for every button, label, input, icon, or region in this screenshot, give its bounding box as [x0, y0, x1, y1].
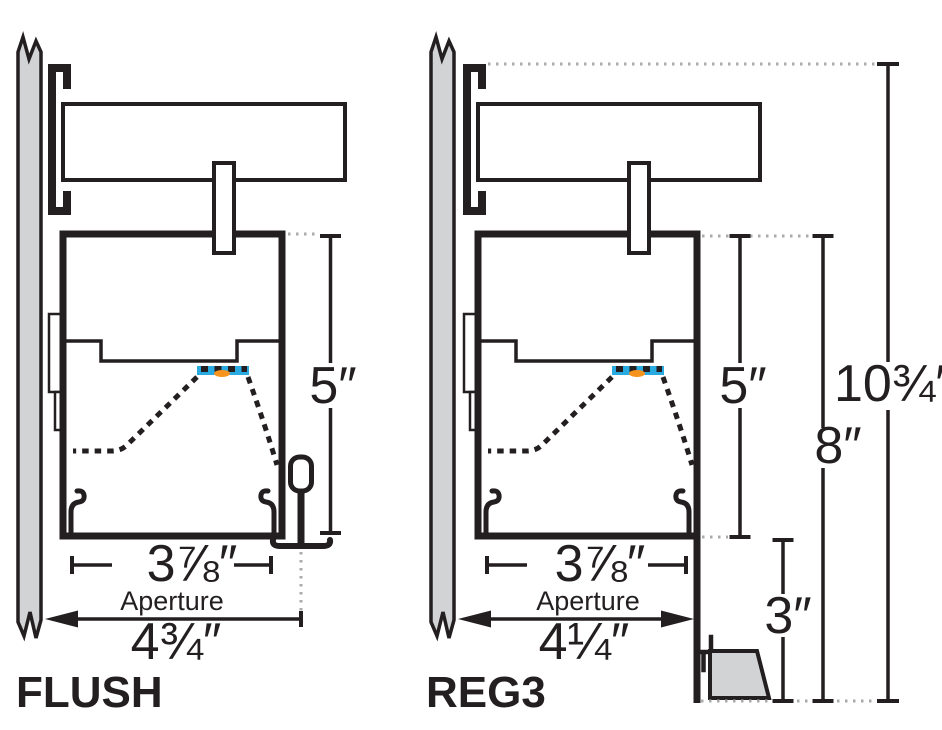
flush-aperture-value: 3⅞″ — [112, 540, 272, 588]
arrow-left-icon — [45, 611, 78, 628]
led-source — [629, 370, 645, 377]
fixture-housing — [63, 234, 282, 536]
wall-section — [431, 37, 454, 638]
reg3-figure-name: REG3 — [426, 670, 646, 716]
tbar-bulb — [291, 457, 312, 491]
mounting-blocking — [63, 104, 345, 180]
reg3-regress-label: 3″ — [758, 592, 818, 640]
diagram-canvas: 5″ 3⅞″ Aperture 4¾″ FLUSH 5″ 8″ 10¾″ 3″ … — [0, 0, 942, 730]
fixture-housing — [478, 234, 697, 536]
led-source — [214, 370, 230, 377]
arrow-left-icon — [458, 611, 491, 628]
reg3-height-label: 5″ — [713, 362, 773, 410]
reg3-aperture-label: Aperture — [508, 586, 668, 616]
reg3-flange-label: 8″ — [808, 422, 868, 470]
hanger-strap — [629, 163, 649, 253]
plaster-bead — [710, 651, 769, 698]
flush-aperture-label: Aperture — [92, 586, 252, 616]
flush-depth-label: 4¾″ — [96, 618, 256, 666]
flush-figure-name: FLUSH — [16, 670, 236, 716]
hanger-strap — [214, 163, 234, 253]
reg3-overall-label: 10¾″ — [834, 360, 942, 408]
wall-section — [18, 37, 41, 638]
flush-height-label: 5″ — [303, 362, 363, 410]
mounting-blocking — [478, 104, 760, 180]
reg3-aperture-value: 3⅞″ — [520, 540, 680, 588]
reg3-depth-label: 4¼″ — [504, 618, 664, 666]
